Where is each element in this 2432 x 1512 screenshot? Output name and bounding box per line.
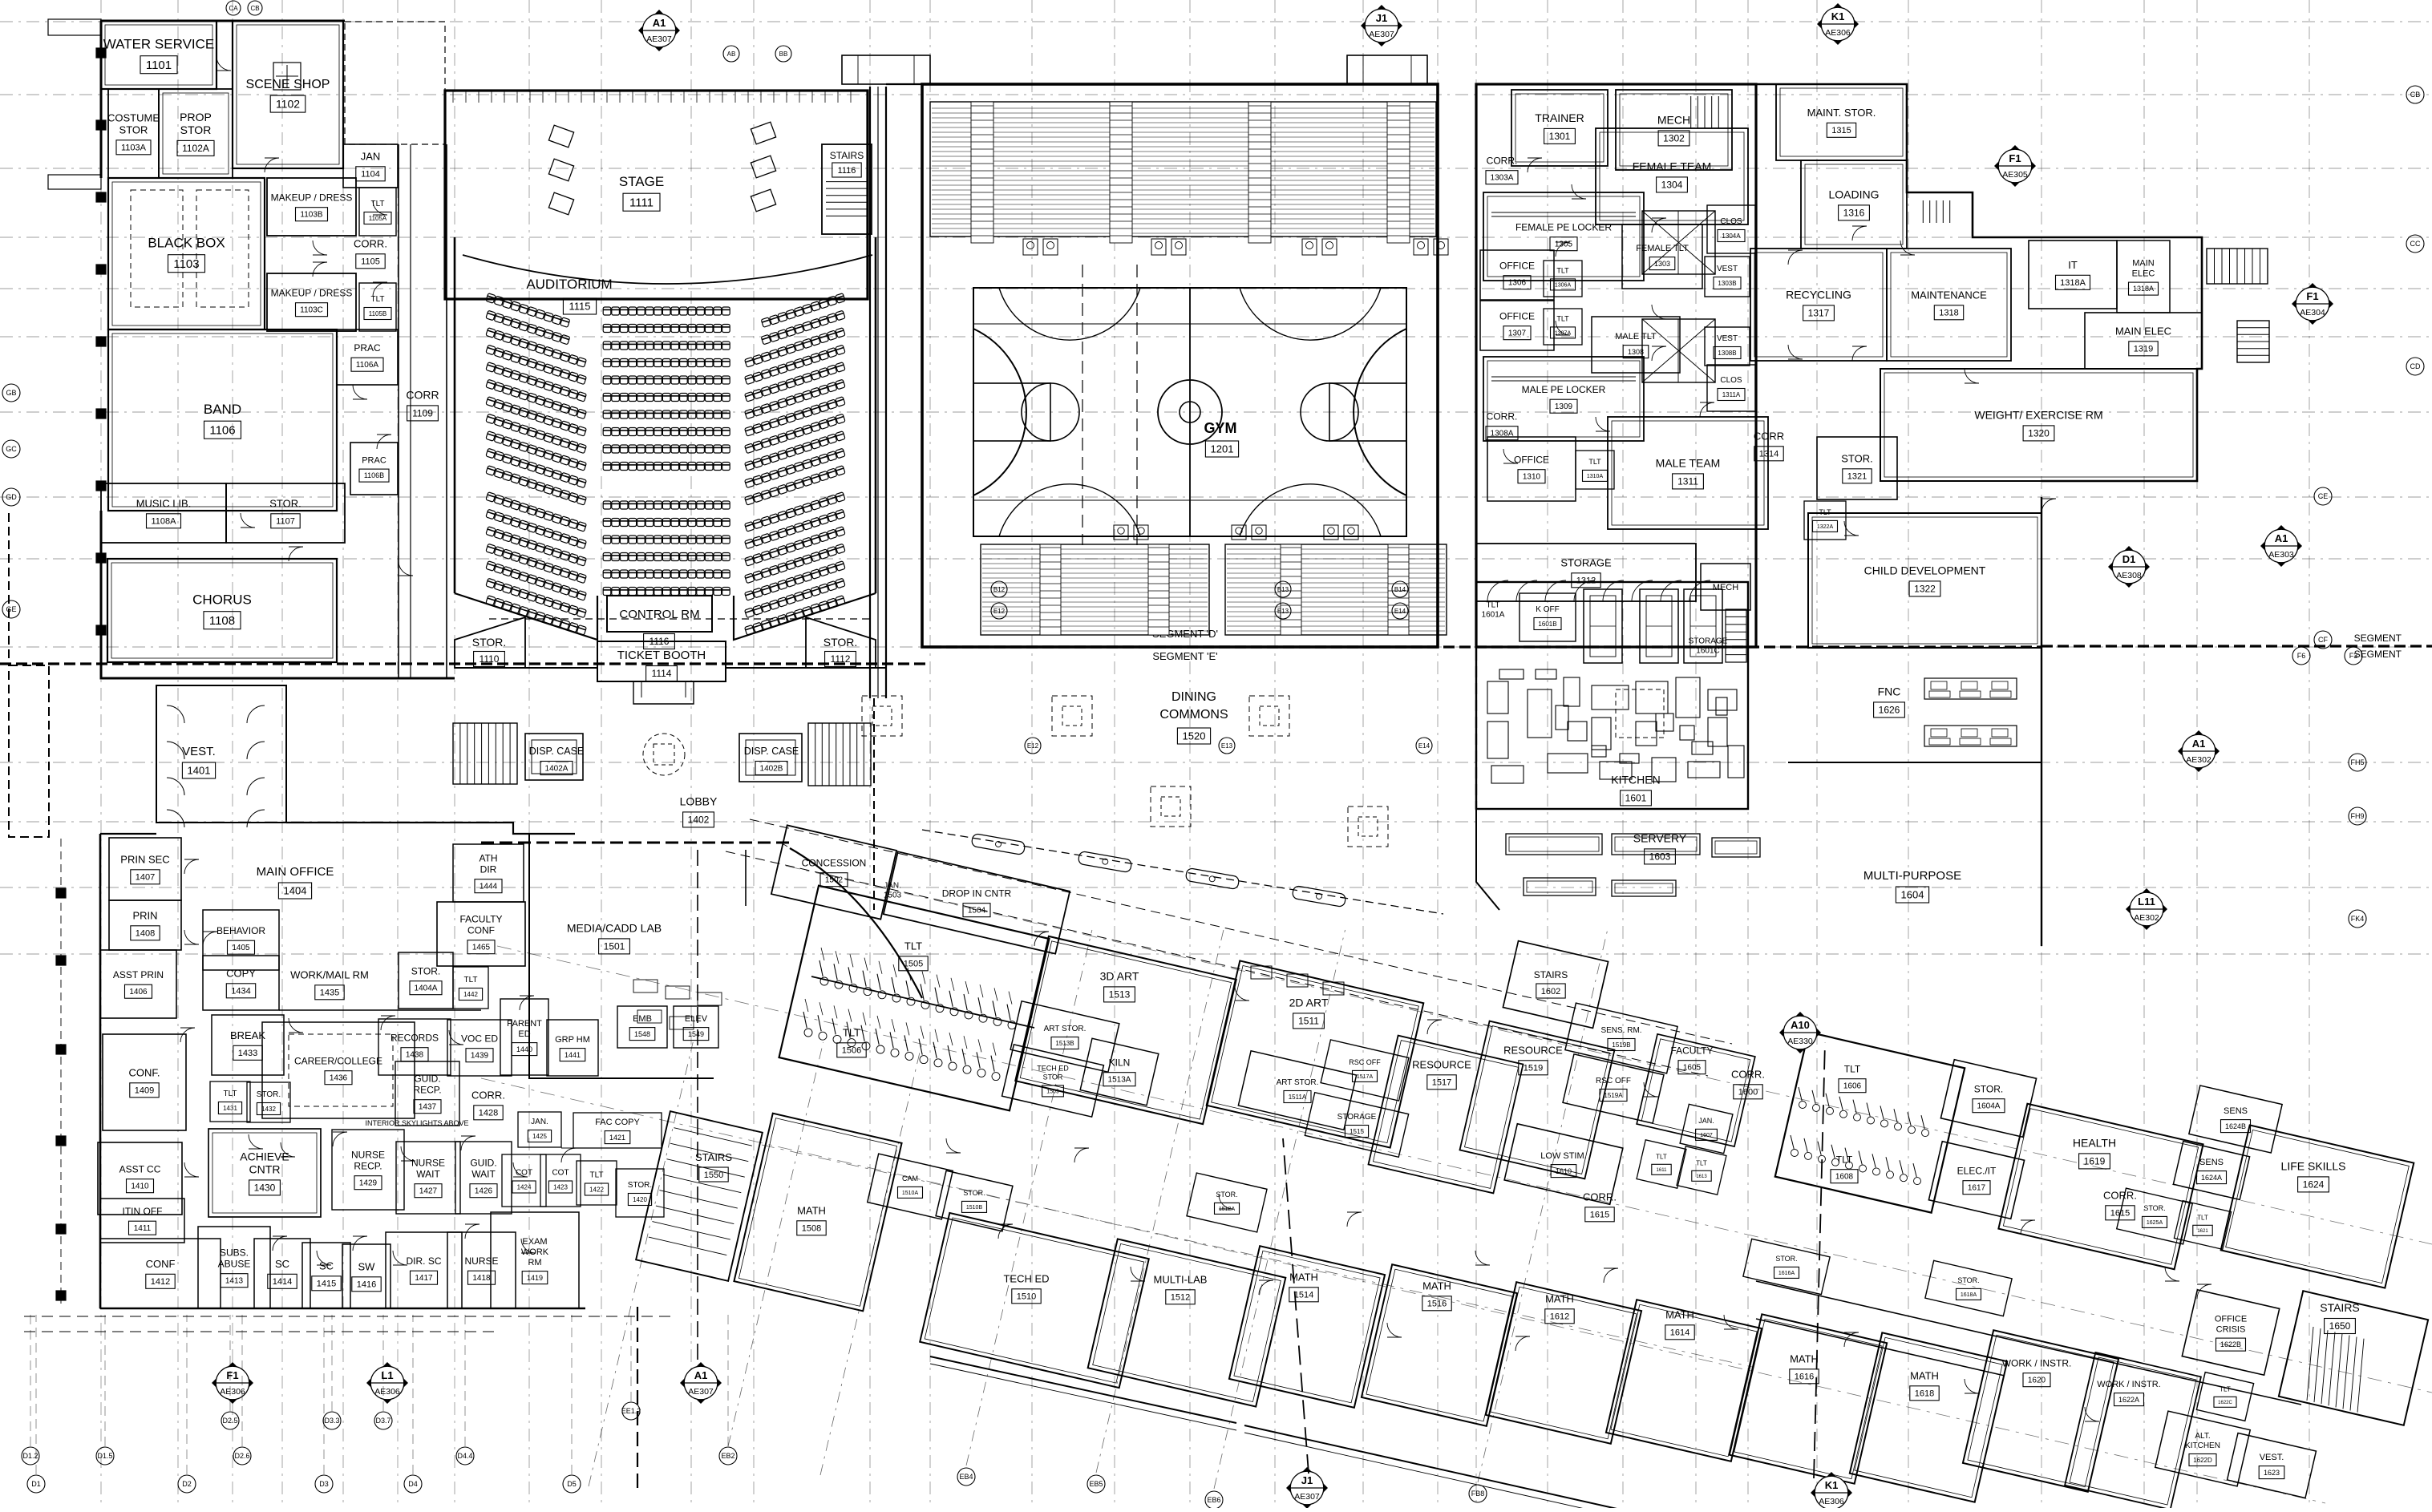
svg-text:1440: 1440	[516, 1045, 532, 1053]
svg-text:STAIRS: STAIRS	[695, 1151, 732, 1163]
svg-text:MAIN: MAIN	[2132, 258, 2155, 268]
svg-text:3D ART: 3D ART	[1100, 969, 1139, 982]
svg-text:1506: 1506	[842, 1046, 861, 1056]
svg-text:1444: 1444	[480, 883, 498, 891]
svg-text:E13: E13	[1277, 608, 1289, 615]
svg-text:RSC OFF: RSC OFF	[1349, 1058, 1381, 1066]
svg-text:1510: 1510	[1017, 1292, 1036, 1302]
svg-text:1408: 1408	[136, 929, 155, 939]
svg-text:TLT: TLT	[1486, 601, 1499, 610]
svg-text:1309: 1309	[1555, 402, 1573, 411]
svg-text:1116: 1116	[838, 166, 856, 176]
svg-text:D3.7: D3.7	[375, 1417, 390, 1425]
svg-text:AE307: AE307	[1369, 30, 1394, 39]
svg-text:SENS. RM.: SENS. RM.	[1600, 1026, 1641, 1035]
svg-text:FH9: FH9	[2350, 812, 2364, 820]
svg-text:FB8: FB8	[1471, 1490, 1485, 1498]
svg-text:1621: 1621	[2197, 1229, 2208, 1234]
svg-text:B13: B13	[1277, 586, 1289, 593]
svg-text:CB: CB	[2410, 91, 2421, 99]
svg-text:TLT: TLT	[1556, 315, 1569, 323]
svg-text:1320: 1320	[2028, 428, 2050, 439]
svg-text:1402: 1402	[688, 815, 710, 826]
svg-text:1101: 1101	[146, 59, 172, 72]
svg-text:1106A: 1106A	[356, 361, 379, 370]
svg-text:DIR: DIR	[480, 864, 497, 875]
svg-text:J1: J1	[1301, 1474, 1313, 1486]
svg-text:1114: 1114	[652, 668, 672, 679]
svg-text:STOR.: STOR.	[269, 498, 301, 510]
svg-text:AB: AB	[727, 51, 736, 58]
svg-text:AE306: AE306	[1819, 1497, 1844, 1506]
svg-text:1104: 1104	[361, 170, 380, 180]
svg-text:AE306: AE306	[374, 1387, 400, 1397]
svg-text:K OFF: K OFF	[1536, 605, 1559, 614]
svg-text:TLT: TLT	[463, 976, 477, 984]
svg-text:D4: D4	[408, 1480, 418, 1488]
svg-text:TECH ED: TECH ED	[1037, 1065, 1069, 1073]
svg-text:1108A: 1108A	[152, 517, 177, 527]
svg-text:SEGMENT: SEGMENT	[2354, 633, 2402, 644]
svg-text:1321: 1321	[1847, 472, 1867, 482]
svg-text:ELEC./IT: ELEC./IT	[1957, 1166, 1997, 1177]
svg-text:1601B: 1601B	[1538, 621, 1556, 628]
svg-text:1549: 1549	[688, 1030, 704, 1038]
svg-text:CAREER/COLLEGE: CAREER/COLLEGE	[294, 1056, 382, 1067]
svg-text:1511: 1511	[1298, 1016, 1319, 1027]
svg-text:GUID.: GUID.	[414, 1073, 440, 1085]
svg-text:STAIRS: STAIRS	[1534, 969, 1568, 980]
svg-text:1311: 1311	[1677, 476, 1698, 487]
svg-text:WATER SERVICE: WATER SERVICE	[103, 37, 215, 52]
svg-text:1421: 1421	[609, 1134, 625, 1142]
svg-text:MATH: MATH	[1790, 1353, 1819, 1365]
svg-text:1604A: 1604A	[1977, 1102, 2001, 1111]
svg-text:1503: 1503	[884, 891, 902, 900]
svg-text:1409: 1409	[135, 1086, 154, 1096]
svg-text:EB2: EB2	[721, 1452, 734, 1460]
svg-text:1437: 1437	[419, 1103, 437, 1112]
svg-text:1616A: 1616A	[1778, 1271, 1795, 1276]
svg-text:PRAC: PRAC	[354, 342, 381, 354]
svg-text:1624B: 1624B	[2225, 1122, 2246, 1130]
svg-text:GC: GC	[6, 445, 17, 453]
svg-text:1304A: 1304A	[1722, 232, 1741, 240]
svg-text:PROP: PROP	[180, 111, 212, 123]
svg-text:CONF.: CONF.	[129, 1067, 160, 1079]
svg-text:1601: 1601	[1625, 793, 1647, 804]
svg-text:RECP.: RECP.	[413, 1085, 441, 1096]
svg-text:AUDITORIUM: AUDITORIUM	[526, 277, 612, 292]
svg-text:1306: 1306	[1508, 279, 1527, 288]
svg-text:1112: 1112	[831, 653, 851, 665]
svg-text:GE: GE	[6, 605, 16, 613]
svg-text:D3.3: D3.3	[324, 1417, 339, 1425]
svg-text:1427: 1427	[419, 1187, 438, 1196]
svg-text:FAC COPY: FAC COPY	[595, 1118, 640, 1127]
svg-text:E12: E12	[1027, 742, 1039, 750]
svg-text:1417: 1417	[415, 1274, 433, 1283]
svg-text:D2.5: D2.5	[222, 1417, 237, 1425]
svg-text:1615: 1615	[2110, 1209, 2130, 1219]
svg-text:1105: 1105	[361, 257, 380, 267]
svg-text:CONF: CONF	[146, 1258, 176, 1270]
svg-text:STOR.: STOR.	[1841, 453, 1873, 465]
svg-text:CONCESSION: CONCESSION	[802, 858, 867, 869]
svg-text:1414: 1414	[273, 1277, 292, 1287]
svg-text:CB: CB	[250, 5, 259, 12]
svg-text:A1: A1	[2275, 532, 2288, 544]
svg-text:1439: 1439	[471, 1052, 489, 1061]
svg-text:BLACK BOX: BLACK BOX	[148, 235, 225, 250]
svg-text:CC: CC	[2410, 240, 2421, 248]
svg-text:STORAGE: STORAGE	[1560, 557, 1612, 569]
svg-text:1107: 1107	[276, 517, 295, 527]
svg-text:1312: 1312	[1576, 576, 1596, 586]
svg-text:1606: 1606	[1843, 1082, 1862, 1091]
svg-text:MAKEUP / DRESS: MAKEUP / DRESS	[271, 288, 353, 299]
svg-text:1306A: 1306A	[1555, 282, 1572, 288]
svg-text:NURSE: NURSE	[351, 1150, 385, 1161]
svg-text:FH5: FH5	[2350, 758, 2364, 766]
svg-text:VEST.: VEST.	[182, 745, 216, 758]
svg-text:1406: 1406	[129, 988, 148, 997]
svg-text:AE307: AE307	[1294, 1492, 1320, 1502]
svg-text:1103B: 1103B	[300, 211, 323, 220]
svg-text:SC: SC	[319, 1260, 334, 1272]
svg-text:1115: 1115	[569, 301, 591, 313]
svg-text:ALT.: ALT.	[2195, 1432, 2210, 1441]
svg-text:1607: 1607	[1700, 1133, 1713, 1138]
svg-text:2D ART: 2D ART	[1289, 996, 1329, 1009]
svg-text:1318A: 1318A	[2060, 278, 2086, 288]
svg-text:AE307: AE307	[688, 1387, 714, 1397]
svg-text:1603: 1603	[1649, 851, 1671, 863]
svg-text:AE305: AE305	[2002, 170, 2028, 180]
svg-text:1517A: 1517A	[1357, 1074, 1374, 1080]
svg-text:RECYCLING: RECYCLING	[1786, 288, 1851, 301]
svg-text:1623: 1623	[2264, 1469, 2280, 1477]
svg-text:D4.4: D4.4	[457, 1452, 472, 1460]
svg-text:B12: B12	[993, 586, 1006, 593]
svg-text:GD: GD	[6, 493, 17, 501]
svg-text:1418: 1418	[472, 1274, 491, 1283]
svg-text:1618A: 1618A	[1961, 1292, 1977, 1298]
svg-text:VOC ED: VOC ED	[461, 1033, 498, 1045]
svg-text:MEDIA/CADD LAB: MEDIA/CADD LAB	[567, 921, 662, 934]
svg-text:1519A: 1519A	[1604, 1092, 1623, 1099]
svg-text:E12: E12	[993, 608, 1006, 615]
svg-text:DIR. SC: DIR. SC	[406, 1255, 441, 1267]
svg-text:1412: 1412	[151, 1277, 170, 1287]
svg-text:1416: 1416	[357, 1280, 376, 1290]
svg-text:TICKET BOOTH: TICKET BOOTH	[617, 649, 706, 662]
svg-text:STOR.: STOR.	[823, 636, 858, 649]
svg-text:CE: CE	[2318, 492, 2329, 500]
svg-text:TLT: TLT	[904, 940, 922, 952]
svg-text:RECP.: RECP.	[354, 1161, 382, 1172]
svg-text:1618: 1618	[1915, 1389, 1934, 1399]
svg-text:EB4: EB4	[959, 1473, 973, 1481]
svg-text:GYM: GYM	[1204, 420, 1236, 436]
svg-text:1405: 1405	[232, 944, 250, 952]
svg-text:CLOS: CLOS	[1720, 217, 1742, 226]
svg-text:1315: 1315	[1831, 126, 1851, 135]
svg-text:JAN.: JAN.	[531, 1118, 548, 1126]
svg-text:PARENT: PARENT	[507, 1019, 542, 1029]
svg-text:1608: 1608	[1835, 1173, 1854, 1182]
svg-text:WORK / INSTR.: WORK / INSTR.	[2002, 1358, 2072, 1369]
svg-text:1322: 1322	[1914, 584, 1936, 595]
svg-text:1619: 1619	[2084, 1156, 2106, 1167]
svg-text:K1: K1	[1825, 1479, 1839, 1491]
svg-text:D5: D5	[567, 1480, 577, 1488]
svg-text:TLT: TLT	[2197, 1214, 2208, 1221]
svg-text:STOR: STOR	[119, 124, 148, 136]
svg-text:COMMONS: COMMONS	[1159, 708, 1228, 722]
svg-text:D2: D2	[182, 1480, 192, 1488]
svg-text:1610: 1610	[1556, 1167, 1572, 1175]
svg-text:1514: 1514	[1294, 1291, 1313, 1300]
svg-text:1432: 1432	[261, 1106, 276, 1113]
svg-text:STOR.: STOR.	[257, 1090, 281, 1099]
svg-text:1605: 1605	[1683, 1064, 1702, 1073]
svg-text:COPY: COPY	[226, 968, 256, 980]
svg-text:1436: 1436	[330, 1074, 348, 1083]
svg-text:1311A: 1311A	[1722, 391, 1741, 398]
svg-text:1622A: 1622A	[2118, 1396, 2139, 1404]
svg-text:DINING: DINING	[1171, 690, 1216, 704]
svg-text:1519B: 1519B	[1612, 1041, 1630, 1049]
svg-text:SERVERY: SERVERY	[1633, 831, 1687, 844]
svg-text:STAIRS: STAIRS	[830, 150, 864, 161]
svg-text:AE304: AE304	[2300, 308, 2325, 317]
svg-text:1411: 1411	[134, 1224, 152, 1233]
svg-text:CORR.: CORR.	[1731, 1069, 1765, 1081]
svg-text:PRAC: PRAC	[362, 455, 386, 465]
svg-text:1109: 1109	[412, 408, 433, 419]
svg-text:CONTROL RM: CONTROL RM	[619, 608, 699, 621]
svg-text:STAIRS: STAIRS	[2320, 1301, 2360, 1314]
svg-text:TLT: TLT	[1696, 1159, 1707, 1166]
svg-text:VEST.: VEST.	[2260, 1453, 2284, 1462]
svg-text:ART STOR.: ART STOR.	[1044, 1025, 1087, 1033]
svg-text:1111: 1111	[629, 196, 654, 209]
svg-text:WEIGHT/ EXERCISE RM: WEIGHT/ EXERCISE RM	[1974, 408, 2102, 421]
svg-text:1548: 1548	[634, 1030, 650, 1038]
svg-text:1102: 1102	[276, 98, 300, 111]
svg-text:COSTUME: COSTUME	[107, 112, 160, 124]
svg-text:1310A: 1310A	[1587, 474, 1604, 479]
svg-text:DISP. CASE: DISP. CASE	[529, 746, 585, 757]
svg-text:AE302: AE302	[2186, 755, 2211, 765]
svg-text:1410: 1410	[131, 1183, 149, 1191]
svg-text:1318A: 1318A	[2133, 285, 2154, 293]
svg-text:RM: RM	[528, 1258, 541, 1267]
svg-text:1302: 1302	[1663, 133, 1685, 144]
svg-text:1510B: 1510B	[966, 1205, 983, 1211]
svg-text:ELEC: ELEC	[2132, 269, 2155, 278]
svg-text:1509: 1509	[1046, 1089, 1059, 1094]
svg-text:JAN: JAN	[361, 151, 381, 163]
svg-text:1508: 1508	[802, 1224, 821, 1234]
svg-text:1438: 1438	[406, 1051, 424, 1060]
svg-text:1614: 1614	[1670, 1328, 1689, 1338]
svg-text:1502: 1502	[825, 876, 844, 885]
svg-text:CORR.: CORR.	[354, 238, 387, 250]
svg-text:CORR.: CORR.	[2103, 1190, 2137, 1202]
svg-text:1504: 1504	[968, 907, 986, 916]
svg-text:GUID.: GUID.	[470, 1158, 496, 1169]
svg-text:CONF: CONF	[467, 925, 495, 936]
svg-text:1426: 1426	[475, 1187, 493, 1196]
svg-text:KITCHEN: KITCHEN	[1611, 773, 1660, 786]
svg-text:1433: 1433	[238, 1049, 257, 1058]
svg-text:1422: 1422	[589, 1186, 604, 1193]
svg-text:1404A: 1404A	[415, 984, 438, 993]
svg-text:STOR.: STOR.	[411, 966, 440, 977]
svg-text:1616: 1616	[1795, 1373, 1814, 1382]
svg-text:CHORUS: CHORUS	[192, 592, 252, 608]
svg-text:MATH: MATH	[797, 1205, 826, 1217]
svg-text:1624: 1624	[2303, 1179, 2325, 1191]
svg-text:STAGE: STAGE	[619, 174, 664, 189]
svg-text:1106: 1106	[209, 424, 235, 438]
svg-text:SEGMENT: SEGMENT	[2354, 649, 2402, 660]
svg-text:1512: 1512	[1171, 1293, 1190, 1303]
svg-text:TLT: TLT	[2220, 1385, 2231, 1393]
svg-text:AE302: AE302	[2134, 913, 2159, 923]
svg-text:CORR.: CORR.	[471, 1090, 505, 1102]
svg-text:1301: 1301	[1549, 131, 1571, 142]
svg-text:BREAK: BREAK	[230, 1029, 265, 1041]
svg-text:1103C: 1103C	[300, 306, 323, 315]
svg-text:MAKEUP / DRESS: MAKEUP / DRESS	[271, 192, 353, 204]
svg-text:E14: E14	[1418, 742, 1430, 750]
svg-text:MATH: MATH	[1545, 1293, 1574, 1305]
svg-text:ABUSE: ABUSE	[218, 1259, 251, 1270]
svg-text:1465: 1465	[472, 944, 491, 952]
svg-text:MECH: MECH	[1713, 583, 1738, 592]
svg-text:D1.5: D1.5	[97, 1452, 112, 1460]
svg-text:1622C: 1622C	[2218, 1401, 2232, 1405]
svg-text:J1: J1	[1376, 12, 1387, 24]
svg-text:1625A: 1625A	[2147, 1220, 2163, 1226]
svg-text:ASST CC: ASST CC	[119, 1164, 161, 1175]
svg-text:OFFICE: OFFICE	[1499, 261, 1535, 272]
svg-text:A1: A1	[2192, 738, 2206, 750]
svg-text:1650: 1650	[2329, 1320, 2351, 1332]
svg-text:1550: 1550	[704, 1170, 723, 1180]
svg-text:STOR.: STOR.	[1957, 1276, 1979, 1284]
svg-text:1601A: 1601A	[1482, 611, 1505, 620]
svg-text:1429: 1429	[359, 1179, 378, 1188]
svg-text:1108: 1108	[209, 614, 235, 628]
svg-text:1201: 1201	[1211, 443, 1234, 455]
svg-text:OFFICE: OFFICE	[2215, 1314, 2247, 1324]
svg-text:BB: BB	[779, 51, 788, 58]
svg-text:RSC OFF: RSC OFF	[1596, 1077, 1631, 1085]
svg-text:1322A: 1322A	[1817, 524, 1834, 530]
svg-text:EMB: EMB	[633, 1014, 652, 1024]
svg-text:RECORDS: RECORDS	[390, 1033, 439, 1044]
svg-text:D3: D3	[319, 1480, 329, 1488]
svg-text:AE306: AE306	[1825, 28, 1851, 38]
svg-text:MUSIC LIB.: MUSIC LIB.	[136, 498, 192, 510]
svg-text:FACULTY: FACULTY	[1670, 1045, 1713, 1057]
svg-text:WORK / INSTR.: WORK / INSTR.	[2097, 1380, 2160, 1389]
svg-text:MULTI-LAB: MULTI-LAB	[1154, 1274, 1208, 1286]
svg-text:FACULTY: FACULTY	[459, 914, 502, 925]
svg-text:LOADING: LOADING	[1828, 188, 1879, 200]
svg-text:STORAGE: STORAGE	[1337, 1113, 1377, 1122]
svg-text:MATH: MATH	[1665, 1309, 1694, 1321]
svg-text:TLT: TLT	[843, 1027, 860, 1039]
svg-text:STOR.: STOR.	[628, 1181, 652, 1190]
svg-text:F1: F1	[2306, 290, 2318, 302]
svg-text:1305: 1305	[1555, 241, 1573, 249]
svg-text:1624A: 1624A	[2201, 1174, 2222, 1182]
svg-text:TLT: TLT	[223, 1090, 237, 1098]
svg-text:MAINT. STOR.: MAINT. STOR.	[1807, 107, 1876, 119]
svg-text:SENS: SENS	[2224, 1106, 2248, 1116]
svg-text:SW: SW	[358, 1261, 376, 1273]
svg-text:BAND: BAND	[204, 402, 241, 417]
svg-text:1513: 1513	[1109, 989, 1131, 1001]
svg-text:TLT: TLT	[1844, 1064, 1861, 1075]
svg-text:EB6: EB6	[1207, 1496, 1220, 1504]
svg-text:1620: 1620	[2028, 1377, 2046, 1385]
svg-text:1316: 1316	[1843, 208, 1865, 219]
svg-text:SENS: SENS	[2199, 1158, 2224, 1167]
svg-text:TLT: TLT	[589, 1171, 603, 1180]
svg-text:1102A: 1102A	[182, 143, 209, 154]
svg-text:1515: 1515	[1350, 1128, 1364, 1135]
svg-text:E13: E13	[1221, 742, 1233, 750]
svg-text:ACHIEVE: ACHIEVE	[240, 1150, 289, 1162]
svg-text:HEALTH: HEALTH	[2073, 1136, 2116, 1149]
svg-text:NURSE: NURSE	[411, 1158, 445, 1169]
svg-text:1103A: 1103A	[121, 144, 147, 153]
svg-text:PRIN SEC: PRIN SEC	[120, 854, 169, 866]
svg-text:B14: B14	[1394, 586, 1406, 593]
svg-text:1314: 1314	[1759, 450, 1778, 459]
svg-text:1317: 1317	[1808, 308, 1830, 319]
svg-text:1604: 1604	[1901, 889, 1924, 901]
svg-text:1617: 1617	[1968, 1184, 1986, 1193]
svg-text:1413: 1413	[225, 1277, 244, 1286]
svg-text:FEMALE PE LOCKER: FEMALE PE LOCKER	[1515, 222, 1612, 233]
svg-text:ASST PRIN: ASST PRIN	[113, 969, 164, 980]
svg-text:1415: 1415	[317, 1280, 336, 1289]
svg-text:D2.6: D2.6	[234, 1452, 249, 1460]
svg-text:1442: 1442	[463, 991, 478, 998]
svg-text:MAINTENANCE: MAINTENANCE	[1911, 289, 1987, 301]
svg-text:FK4: FK4	[2351, 915, 2365, 923]
svg-text:1600: 1600	[1738, 1088, 1758, 1098]
svg-text:NURSE: NURSE	[464, 1255, 498, 1267]
svg-text:1602: 1602	[1541, 987, 1560, 997]
svg-text:LOBBY: LOBBY	[680, 794, 718, 807]
svg-text:STOR.: STOR.	[2143, 1204, 2165, 1212]
svg-text:FEMALE TLT: FEMALE TLT	[1636, 244, 1689, 253]
svg-text:AE308: AE308	[2116, 571, 2142, 580]
svg-text:1612: 1612	[1550, 1312, 1569, 1322]
svg-text:MATH: MATH	[1910, 1370, 1939, 1382]
svg-text:OFFICE: OFFICE	[1514, 455, 1549, 466]
svg-text:BEHAVIOR: BEHAVIOR	[216, 925, 265, 936]
svg-text:F3: F3	[2349, 652, 2358, 660]
